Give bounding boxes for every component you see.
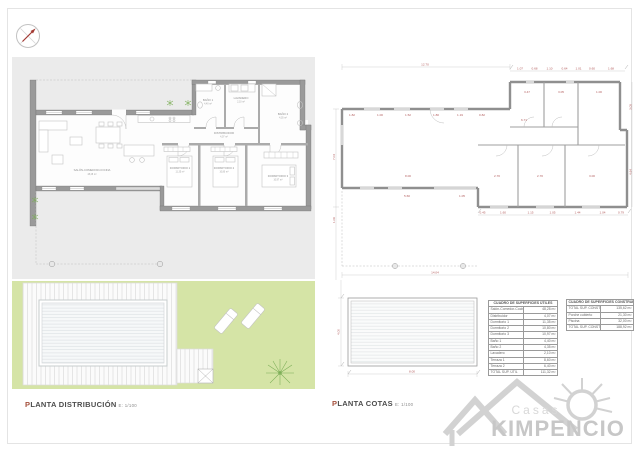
- dim-label: 4.64: [629, 169, 633, 175]
- room-area: 2,10 m²: [237, 101, 245, 104]
- dim-label: 1.19: [457, 113, 463, 117]
- cotas-interior-walls: [478, 82, 625, 207]
- dim-label: 1.00: [596, 90, 602, 94]
- tree-icon: [266, 359, 294, 385]
- table-row: TOTAL SUP. CONSTRUIDA188,92 m²: [567, 325, 634, 331]
- logo-subtitle: Casas: [511, 403, 560, 417]
- right-plan-title: PLANTA COTASE: 1/100: [332, 399, 413, 408]
- useful-surfaces-table: CUADRO DE SUPERFICIES ÚTILES Salón-Comed…: [488, 300, 558, 376]
- deck-hatch-square: [198, 369, 213, 383]
- sun-lounger: [214, 308, 238, 334]
- cotas-terrace-boundary: [342, 191, 478, 269]
- room-area: 10,80 m²: [219, 171, 228, 174]
- dim-label: 0.64: [561, 67, 567, 71]
- dim-label: 12.70: [421, 63, 429, 67]
- room-label: DISTRIBUIDOR: [214, 131, 234, 135]
- entrance-opening: [112, 110, 126, 116]
- room-area: 4,35 m²: [279, 117, 287, 120]
- room-area: 11,35 m²: [176, 171, 185, 174]
- dim-label: 0.60: [589, 67, 595, 71]
- room-label: SALÓN-COMEDOR-COCINA: [74, 167, 111, 172]
- row-value: 188,92 m²: [600, 325, 634, 331]
- dim-label: 0.45: [479, 211, 485, 215]
- table-title: CUADRO DE SUPERFICIES ÚTILES: [489, 301, 558, 307]
- dimension-labels: 12.70 1.07 0.68 1.10 0.64 1.01 0.60 1.68…: [332, 63, 633, 275]
- room-label: LAVADERO: [234, 96, 250, 100]
- dim-label: 0.82: [479, 113, 485, 117]
- table-header: CUADRO DE SUPERFICIES CONSTRUIDAS: [567, 300, 634, 306]
- dim-label: 0.79: [618, 211, 624, 215]
- dim-label: 1.00: [377, 113, 383, 117]
- dim-label: 0.68: [531, 67, 537, 71]
- drawing-sheet: SALÓN-COMEDOR-COCINA 48,28 m² DISTRIBUID…: [0, 0, 637, 450]
- room-label: DORMITORIO 1: [170, 166, 191, 170]
- dim-label: 6.71: [521, 118, 527, 122]
- dimension-lines: [333, 64, 632, 280]
- room-area: 4,40 m²: [204, 103, 212, 106]
- company-logo: Casas KIMPENCIO: [440, 372, 635, 448]
- room-label: DORMITORIO 2: [214, 166, 235, 170]
- dim-label: 2.70: [537, 174, 543, 178]
- room-area: 48,28 m²: [87, 173, 96, 176]
- room-label: DORMITORIO 3: [268, 174, 289, 178]
- dim-label: 1.10: [546, 67, 552, 71]
- room-label: BAÑO 2: [278, 111, 289, 116]
- dim-label: 1.05: [549, 211, 555, 215]
- laundry-fixtures: [229, 84, 255, 92]
- bedroom3-furniture: [262, 152, 298, 187]
- logo-name: KIMPENCIO: [491, 416, 625, 441]
- table-title: CUADRO DE SUPERFICIES CONSTRUIDAS: [567, 300, 634, 306]
- dim-label: 1.60: [500, 211, 506, 215]
- dim-label: 8.00: [409, 370, 415, 374]
- dim-label: 1.06: [332, 217, 336, 223]
- dim-label: 1.52: [405, 113, 411, 117]
- dim-label: 3.05: [629, 104, 633, 110]
- dim-label: 1.04: [599, 211, 605, 215]
- garden-plan-panel: [12, 281, 315, 389]
- north-arrow-icon: [13, 21, 43, 51]
- built-surfaces-table: CUADRO DE SUPERFICIES CONSTRUIDAS TOTAL …: [566, 299, 634, 331]
- room-area: 10,97 m²: [273, 179, 282, 182]
- row-label: TOTAL SUP. CONSTRUIDA: [567, 325, 601, 331]
- pool-water: [42, 303, 164, 363]
- dim-label: 8.00: [405, 174, 411, 178]
- sun-lounger: [241, 303, 265, 329]
- table-header: CUADRO DE SUPERFICIES ÚTILES: [489, 301, 558, 307]
- dim-label: 1.68: [608, 67, 614, 71]
- cotas-door-swings: [430, 109, 599, 156]
- dim-label: 1.82: [349, 113, 355, 117]
- dim-label: 1.80: [433, 113, 439, 117]
- room-area: 4,07 m²: [220, 136, 228, 139]
- dim-label: 3.47: [524, 90, 530, 94]
- dim-label: 3.00: [589, 174, 595, 178]
- dim-label: 1.07: [517, 67, 523, 71]
- scale-label: E: 1/100: [119, 403, 137, 408]
- room-label: BAÑO 1: [203, 97, 214, 102]
- dim-label: 3.05: [558, 90, 564, 94]
- left-plan-title: PLANTA DISTRIBUCIÓNE: 1/100: [25, 400, 137, 409]
- garden-drawing: [12, 281, 315, 389]
- dim-label: 5.60: [404, 194, 410, 198]
- dimensions-plan-drawing: 12.70 1.07 0.68 1.10 0.64 1.01 0.60 1.68…: [330, 57, 635, 280]
- sun-icon: [554, 378, 612, 419]
- dim-label: 1.01: [575, 67, 581, 71]
- dim-label: 14.04: [431, 271, 439, 275]
- distribution-plan-panel: SALÓN-COMEDOR-COCINA 48,28 m² DISTRIBUID…: [12, 57, 315, 279]
- dim-label: 4.00: [337, 329, 341, 335]
- dim-label: 1.44: [574, 211, 580, 215]
- pool-water-outline: [351, 301, 474, 363]
- row-label: TOTAL SUP. CONSTRUIDA VIVIENDA: [567, 306, 601, 312]
- title-text: LANTA DISTRIBUCIÓN: [30, 400, 116, 409]
- dim-label: 1.15: [527, 211, 533, 215]
- distribution-plan-drawing: SALÓN-COMEDOR-COCINA 48,28 m² DISTRIBUID…: [12, 57, 315, 279]
- row-label: Salón-Comedor-Cocina: [489, 307, 524, 313]
- dim-label: 1.05: [459, 194, 465, 198]
- dim-label: 2.70: [494, 174, 500, 178]
- title-text: LANTA COTAS: [337, 399, 393, 408]
- dim-label: 7.04: [332, 154, 336, 160]
- scale-label: E: 1/100: [395, 402, 413, 407]
